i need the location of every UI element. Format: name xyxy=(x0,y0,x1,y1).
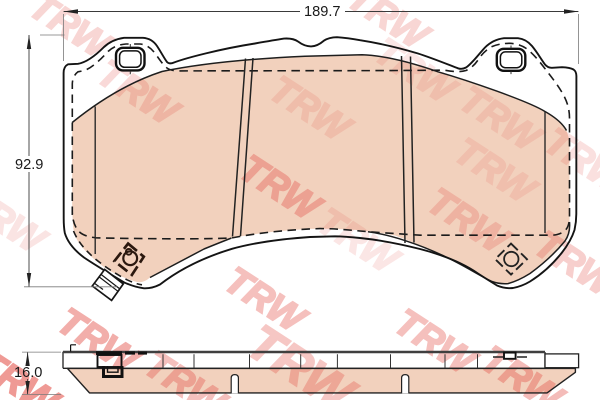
svg-text:189.7: 189.7 xyxy=(304,4,341,20)
svg-text:16.0: 16.0 xyxy=(14,365,42,381)
svg-text:92.9: 92.9 xyxy=(15,157,43,173)
